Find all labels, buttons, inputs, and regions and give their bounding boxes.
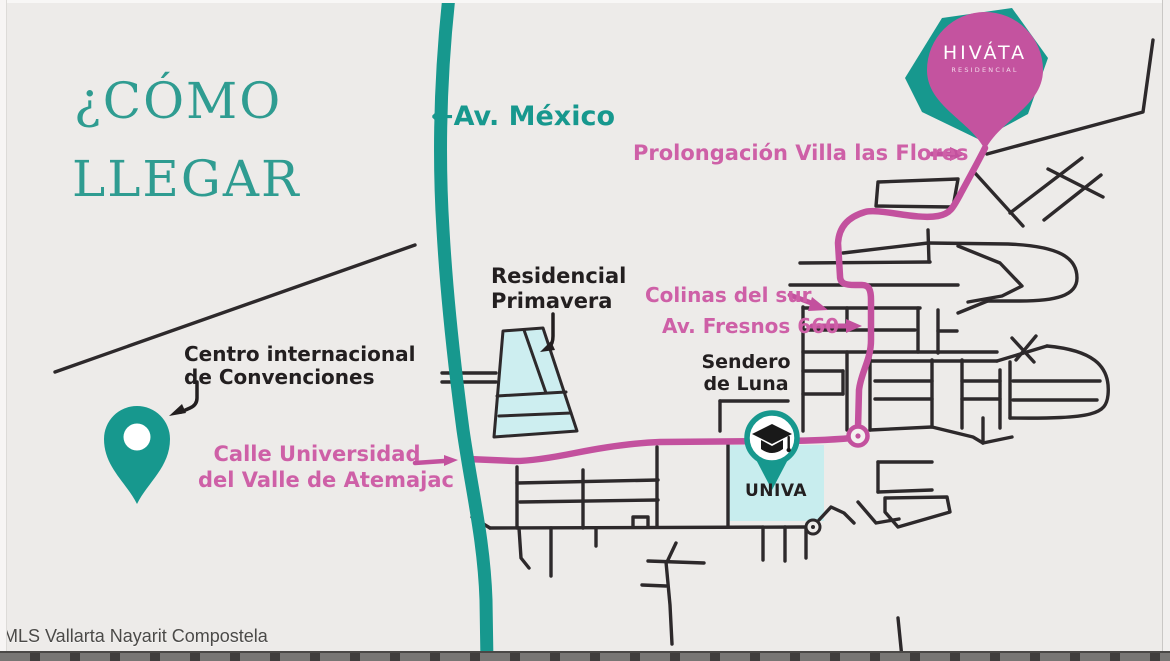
sendero-de-luna-label: Sendero de Luna [688,351,804,395]
centro-convenciones-line2: de Convenciones [184,366,415,389]
av-fresnos-label: Av. Fresnos 660 [662,314,839,338]
residencial-primavera-block [494,328,577,437]
roundabout-icon [849,427,868,446]
centro-convenciones-pin [104,406,170,504]
page-title-line2: LLEGAR [72,150,301,208]
residencial-primavera-line1: Residencial [491,264,626,289]
calle-universidad-line2: del Valle de Atemajac [198,467,436,493]
mini-roundabout-icon [806,520,820,534]
hivata-logo-subtitle: RESIDENCIAL [925,66,1045,74]
page-title-line1: ¿CÓMO [74,72,282,130]
residencial-primavera-line2: Primavera [491,289,626,314]
univa-label: UNIVA [728,481,824,501]
av-mexico-label: ←Av. México [431,101,615,132]
sendero-line2: de Luna [688,373,804,395]
colinas-del-sur-label: Colinas del sur [645,283,811,307]
slide-left-edge [0,0,7,661]
centro-convenciones-line1: Centro internacional [184,343,415,366]
slide-right-edge [1162,0,1170,661]
residencial-primavera-label: Residencial Primavera [491,264,626,314]
watermark: MLS Vallarta Nayarit Compostela [3,626,268,647]
map-slide: ¿CÓMO LLEGAR ←Av. México Prolongación Vi… [0,0,1170,661]
calle-universidad-label: Calle Universidad del Valle de Atemajac [198,441,436,493]
av-mexico-road [441,0,487,661]
film-strip-bar [0,651,1170,661]
centro-convenciones-label: Centro internacional de Convenciones [184,343,415,389]
sendero-line1: Sendero [688,351,804,373]
slide-top-edge [0,0,1170,3]
hivata-pin [905,8,1048,150]
prolongacion-villa-las-flores-label: Prolongación Villa las Flores [633,141,969,165]
left-arrow-icon: ← [431,101,454,132]
calle-universidad-line1: Calle Universidad [198,441,436,467]
hivata-logo: HIVÁTA [925,42,1045,64]
